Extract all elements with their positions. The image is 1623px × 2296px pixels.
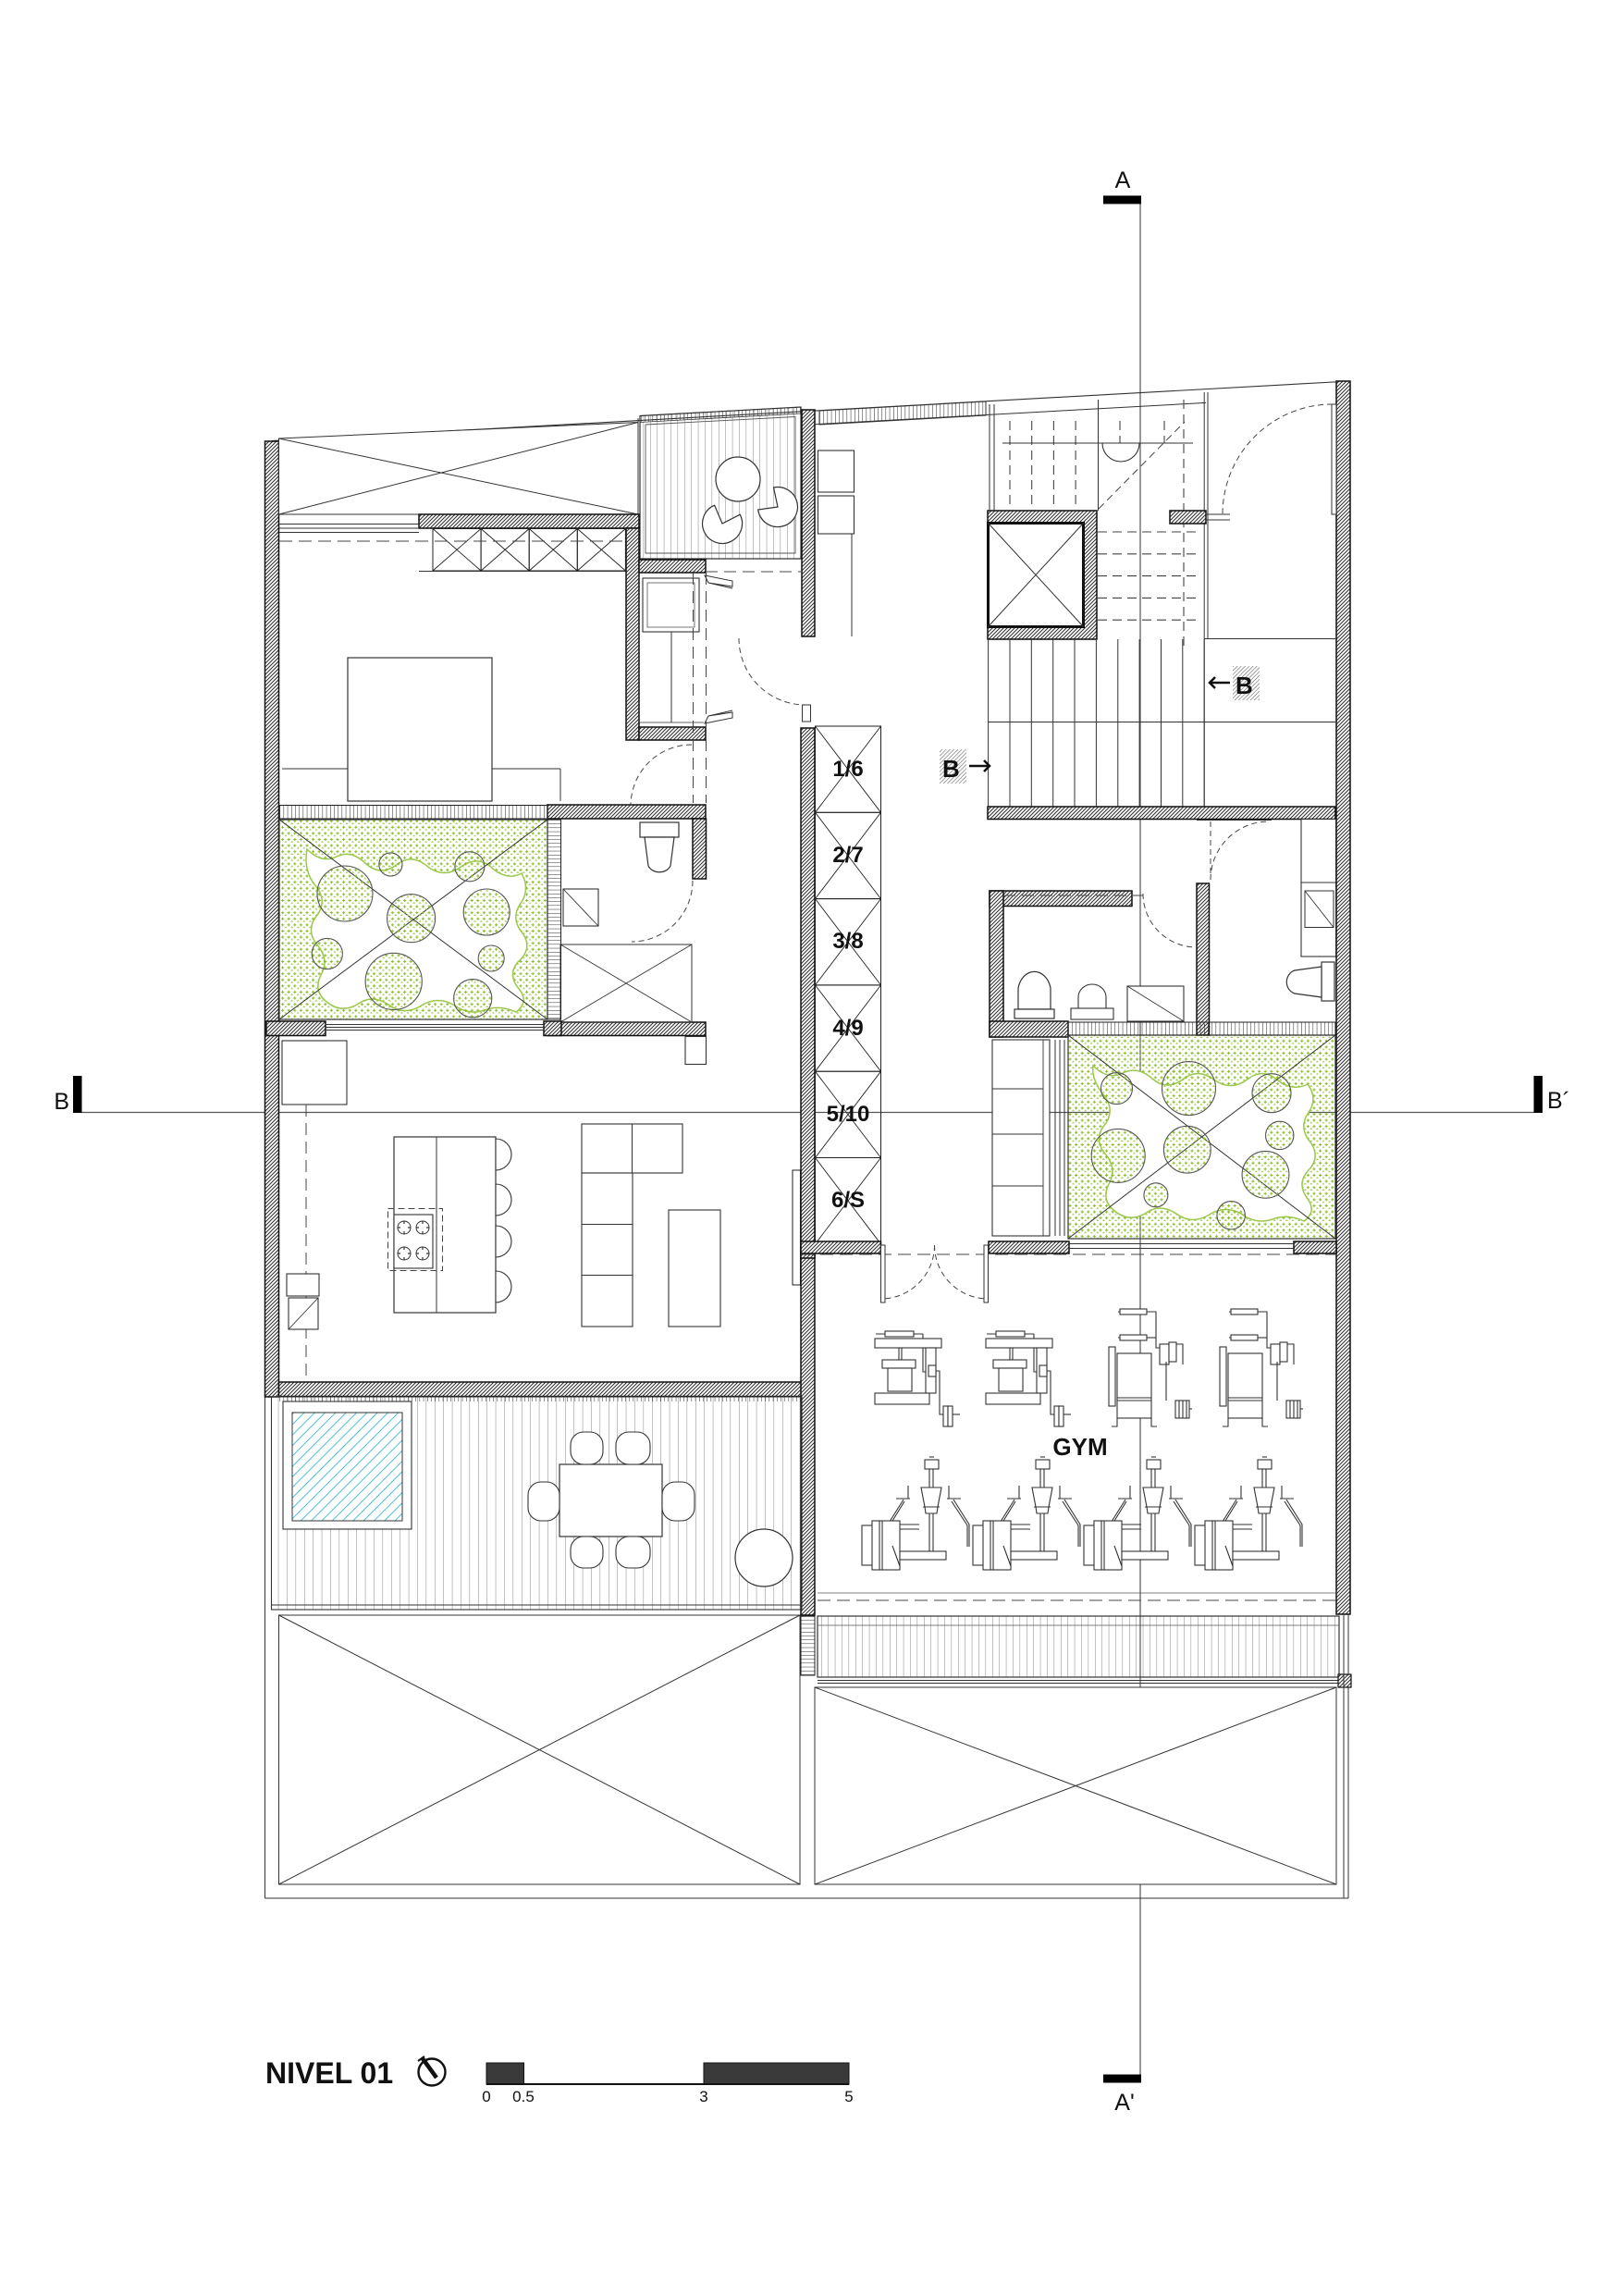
svg-text:6/S: 6/S (831, 1188, 865, 1213)
svg-text:5: 5 (844, 2088, 853, 2105)
svg-text:B: B (1236, 672, 1253, 699)
svg-text:B´: B´ (1547, 1088, 1570, 1114)
svg-text:A: A (1115, 167, 1131, 193)
svg-text:1/6: 1/6 (832, 757, 863, 782)
svg-text:B: B (54, 1089, 69, 1115)
svg-text:4/9: 4/9 (832, 1016, 863, 1041)
svg-text:A': A' (1114, 2090, 1134, 2116)
svg-text:2/7: 2/7 (832, 843, 863, 868)
svg-text:0.5: 0.5 (512, 2088, 535, 2105)
svg-text:B: B (942, 755, 960, 783)
svg-text:3: 3 (699, 2088, 707, 2105)
svg-text:GYM: GYM (1052, 1433, 1107, 1461)
svg-text:3/8: 3/8 (832, 929, 863, 954)
svg-text:NIVEL 01: NIVEL 01 (265, 2056, 393, 2090)
svg-text:0: 0 (482, 2088, 490, 2105)
svg-text:5/10: 5/10 (827, 1102, 870, 1127)
